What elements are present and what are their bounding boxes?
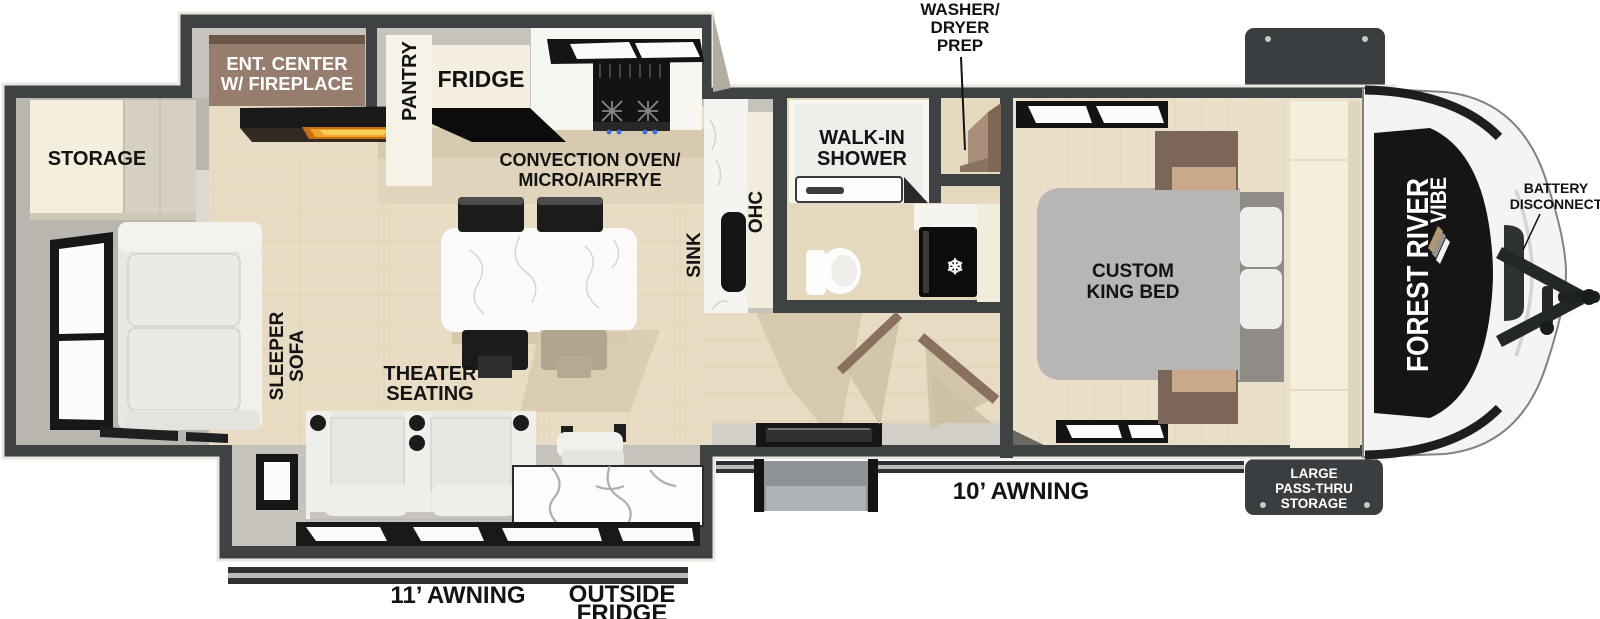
svg-text:ENT. CENTERW/ FIREPLACE: ENT. CENTERW/ FIREPLACE <box>221 53 354 94</box>
svg-text:VIBE: VIBE <box>1426 177 1451 223</box>
svg-text:STORAGE: STORAGE <box>48 148 147 170</box>
svg-text:10’ AWNING: 10’ AWNING <box>953 478 1089 505</box>
svg-text:OUTSIDEFRIDGE: OUTSIDEFRIDGE <box>569 581 676 619</box>
svg-text:OHC: OHC <box>746 191 767 234</box>
svg-text:BATTERYDISCONNECT: BATTERYDISCONNECT <box>1510 180 1600 212</box>
svg-text:CUSTOMKING BED: CUSTOMKING BED <box>1087 261 1180 303</box>
svg-text:FRIDGE: FRIDGE <box>438 66 525 92</box>
svg-text:THEATERSEATING: THEATERSEATING <box>384 363 478 405</box>
svg-text:WALK-INSHOWER: WALK-INSHOWER <box>817 127 908 170</box>
svg-text:SINK: SINK <box>684 232 705 278</box>
svg-text:11’ AWNING: 11’ AWNING <box>390 582 525 609</box>
svg-text:❄: ❄ <box>946 256 964 279</box>
svg-text:CONVECTION OVEN/MICRO/AIRFRYE: CONVECTION OVEN/MICRO/AIRFRYE <box>499 150 680 190</box>
svg-text:PANTRY: PANTRY <box>399 40 421 121</box>
